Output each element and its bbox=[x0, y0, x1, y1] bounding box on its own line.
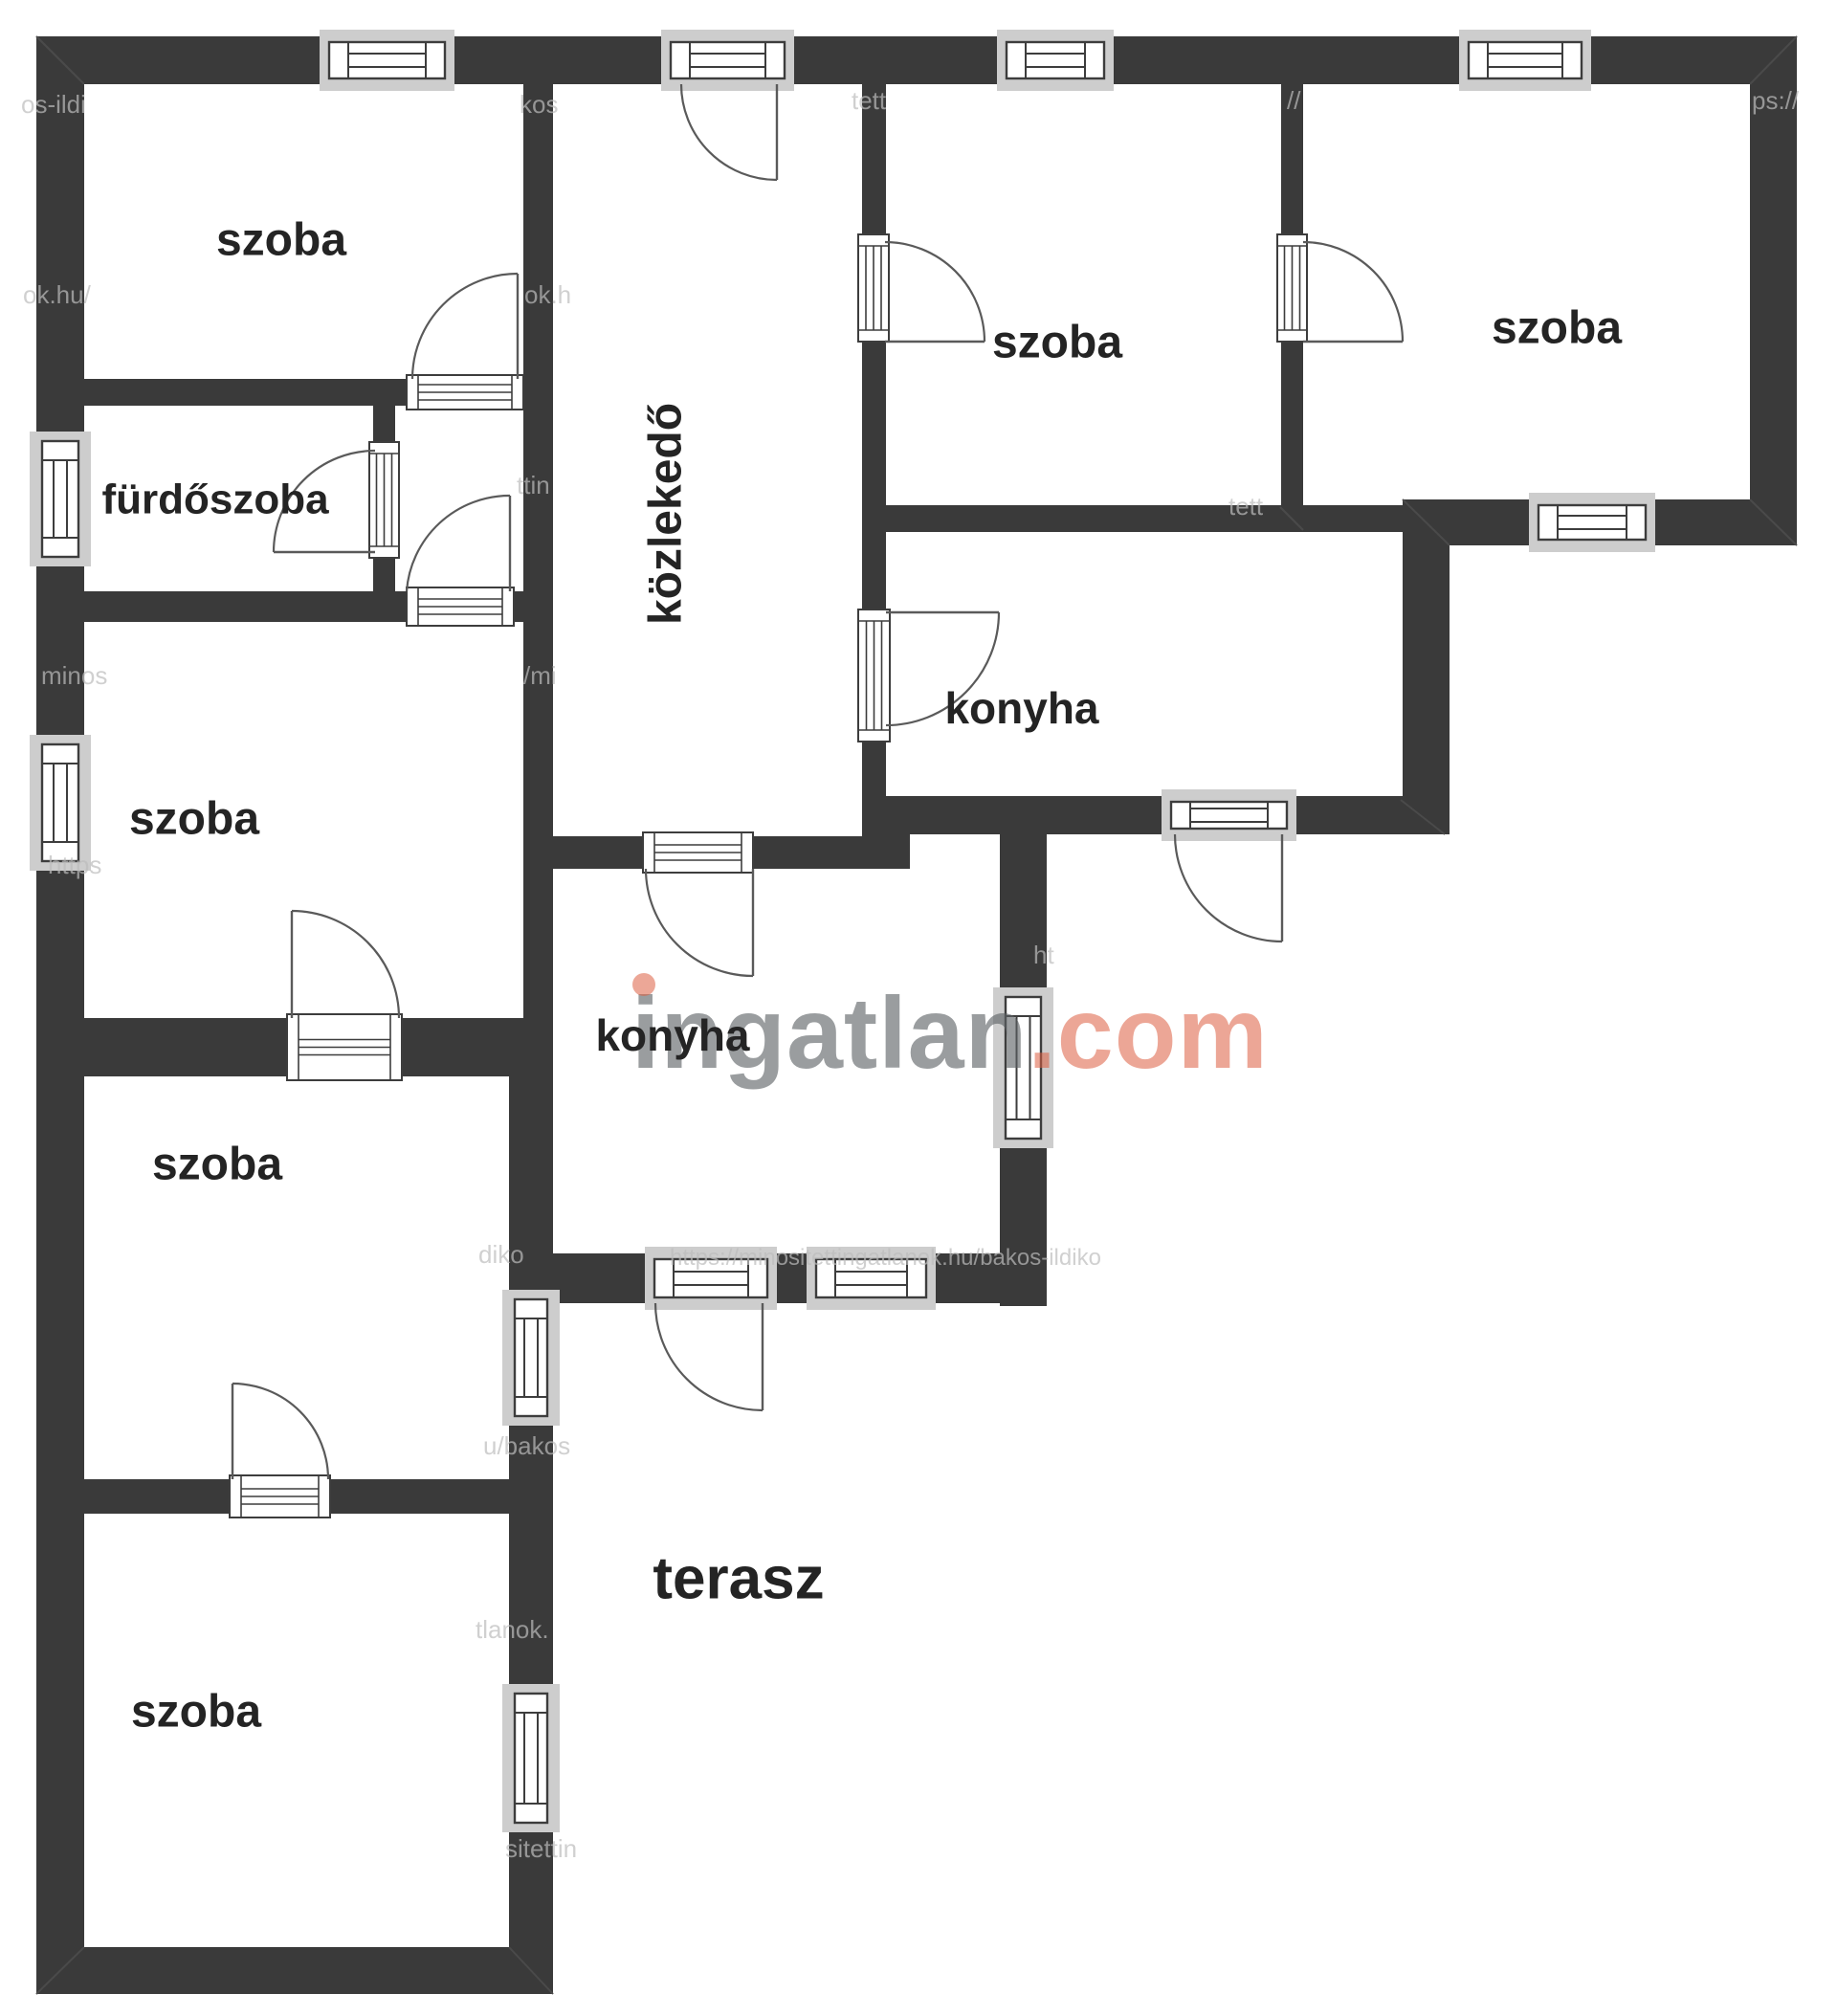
watermark-fragment: https://minositettingatlanok.hu/bakos-il… bbox=[670, 1245, 1101, 1271]
win-szoba2-top bbox=[997, 30, 1114, 91]
watermark-fragment: tlanok. bbox=[476, 1615, 549, 1644]
room-label-szoba-lower-left: szoba bbox=[152, 1140, 282, 1190]
watermark-i-dot bbox=[632, 973, 655, 996]
wall-szoba2-bottom bbox=[862, 505, 1403, 532]
watermark-fragment: os-ildi bbox=[21, 90, 86, 119]
sill-vest-bottom bbox=[407, 587, 514, 626]
sill-szoba2 bbox=[858, 234, 889, 342]
win-szoba3-top bbox=[1459, 30, 1591, 91]
sill-szoba3 bbox=[1277, 234, 1307, 342]
floor-plan-svg: os-ildikostett//ps://ok.hu/ok.httintettm… bbox=[0, 0, 1837, 2016]
wall-outer-left bbox=[36, 36, 84, 1994]
watermark-fragment: minos bbox=[41, 661, 107, 690]
watermark-fragment: ht bbox=[1033, 941, 1054, 969]
win-szoba1-top bbox=[320, 30, 454, 91]
win-furdoszoba-left bbox=[30, 432, 91, 566]
room-label-terasz: terasz bbox=[653, 1546, 824, 1612]
sill-terasz-konyha1 bbox=[1162, 789, 1296, 841]
sill-szoba-lower bbox=[230, 1475, 330, 1518]
watermark-fragment: // bbox=[1287, 86, 1301, 115]
watermark-fragment: ps:// bbox=[1752, 86, 1800, 115]
win-szoba-bottom bbox=[502, 1684, 560, 1832]
watermark-fragment: u/bakos bbox=[483, 1431, 570, 1460]
room-label-szoba-top-left: szoba bbox=[216, 215, 346, 266]
watermark-text-accent: .com bbox=[1028, 977, 1268, 1090]
sill-konyha2 bbox=[643, 832, 753, 873]
watermark-fragment: ok.hu/ bbox=[23, 280, 92, 309]
watermark-fragment: tett bbox=[1228, 492, 1264, 521]
room-label-furdoszoba: fürdőszoba bbox=[101, 476, 329, 523]
sill-szoba1-vest bbox=[407, 375, 523, 410]
wall-konyha-upper-right bbox=[1403, 499, 1450, 834]
floor-plan-image: os-ildikostett//ps://ok.hu/ok.httintettm… bbox=[0, 0, 1837, 2016]
watermark-fragment: ok.h bbox=[524, 280, 571, 309]
sill-entrance bbox=[661, 30, 794, 91]
sill-furdo bbox=[369, 442, 399, 558]
room-label-kozlekedo: közlekedő bbox=[641, 403, 692, 625]
win-szoba3-bottom bbox=[1529, 493, 1655, 552]
sill-konyha1 bbox=[858, 609, 890, 742]
win-szoba-lower bbox=[502, 1290, 560, 1426]
watermark-fragment: diko bbox=[478, 1240, 524, 1269]
room-label-szoba-top-right: szoba bbox=[1492, 303, 1622, 354]
watermark-fragment: /mi bbox=[523, 661, 557, 690]
room-label-konyha-lower: konyha bbox=[595, 1010, 749, 1060]
room-label-szoba-mid-left: szoba bbox=[129, 794, 259, 845]
room-label-szoba-top-middle: szoba bbox=[992, 318, 1122, 368]
room-label-konyha-upper: konyha bbox=[944, 683, 1098, 733]
sill-szoba-mid bbox=[287, 1014, 402, 1080]
watermark-fragment: tett bbox=[852, 86, 887, 115]
watermark-fragment: https bbox=[48, 851, 101, 879]
room-label-szoba-bottom-left: szoba bbox=[131, 1687, 261, 1738]
watermark-fragment: ttin bbox=[517, 471, 550, 499]
wall-outer-bottom-left bbox=[36, 1947, 553, 1994]
watermark-fragment: sitettin bbox=[505, 1834, 577, 1863]
watermark-fragment: kos bbox=[520, 90, 558, 119]
